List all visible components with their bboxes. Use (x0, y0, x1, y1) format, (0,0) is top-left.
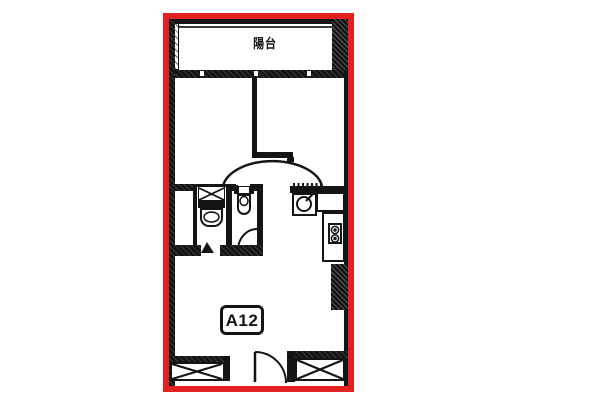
divider-end-step (287, 157, 294, 162)
balcony-inner-line (179, 26, 332, 28)
kitchen-sink-icon (292, 193, 317, 216)
faucet-mark (207, 206, 214, 210)
kitchen-counter-top (316, 192, 345, 212)
closet-wall (193, 186, 197, 246)
left-exterior-wall (169, 19, 175, 386)
balcony-window-wall (169, 70, 348, 78)
window-box-left (170, 362, 225, 381)
window-box-left-cap (224, 356, 230, 381)
toilet-icon (237, 194, 251, 215)
toilet-tank (238, 186, 250, 194)
toilet-tank-cap (250, 185, 254, 194)
balcony-railing (169, 19, 332, 24)
unit-label-box: A12 (220, 305, 264, 335)
stove-icon (328, 223, 342, 244)
kitchen-wall-hatch-ticks (293, 183, 322, 186)
window-tick (254, 71, 258, 76)
balcony-label: 陽台 (242, 36, 288, 52)
bathroom-door-gap (201, 245, 220, 256)
kitchen-wall-pillar (331, 264, 348, 310)
floor-plan-image: 陽台 A12 (0, 0, 600, 408)
unit-label: A12 (223, 308, 261, 333)
bathroom-divider-wall (226, 186, 232, 246)
window-tick (200, 71, 204, 76)
entry-door-jamb (287, 351, 295, 382)
balcony-corner-wall-block (332, 19, 348, 70)
bedroom-divider-wall (252, 78, 257, 152)
window-tick (307, 71, 311, 76)
window-box-right (295, 358, 345, 381)
toilet-icon (200, 208, 223, 227)
washing-machine-icon (198, 186, 225, 201)
